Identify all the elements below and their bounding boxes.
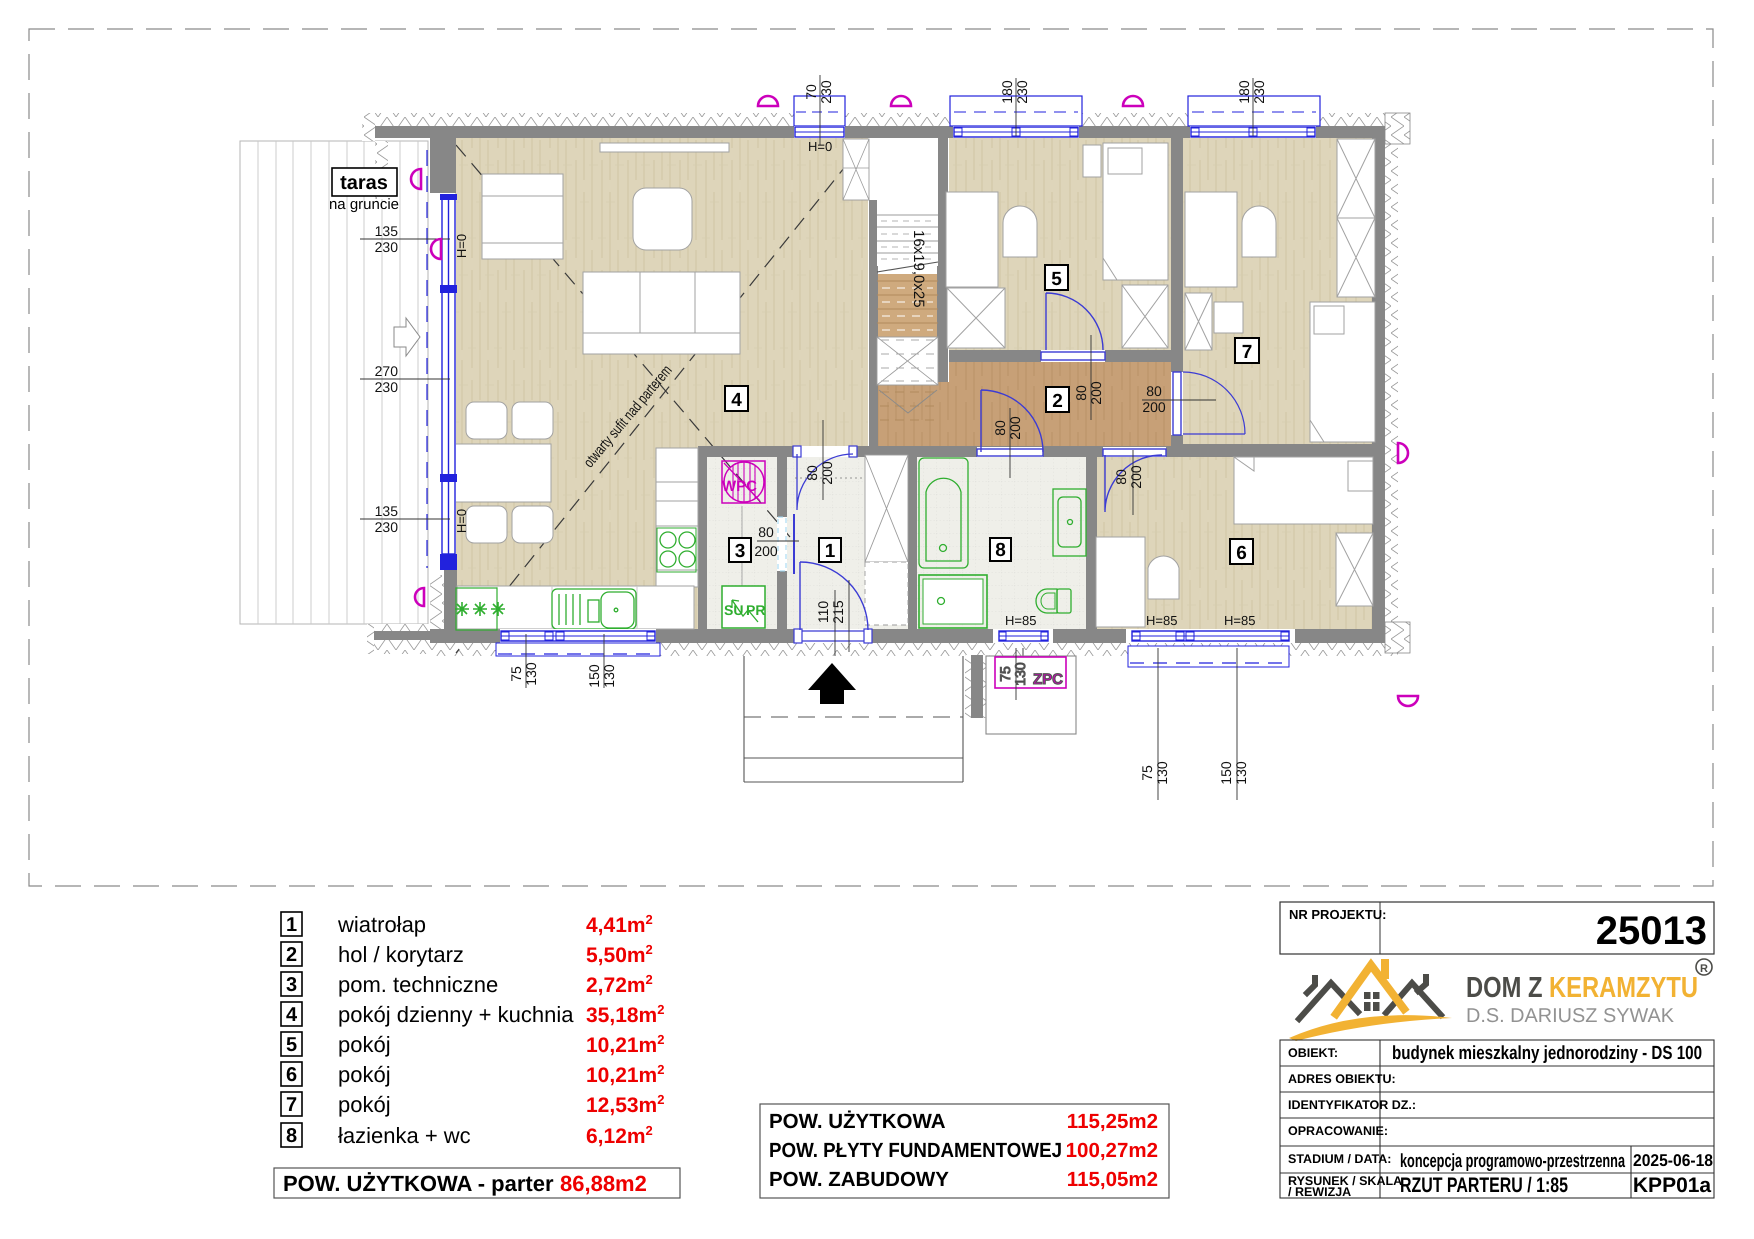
svg-text:2: 2: [286, 944, 297, 966]
svg-text:115,25m2: 115,25m2: [1067, 1110, 1158, 1133]
svg-text:5: 5: [286, 1034, 297, 1056]
svg-text:OPRACOWANIE:: OPRACOWANIE:: [1288, 1124, 1388, 1138]
svg-text:POW. ZABUDOWY: POW. ZABUDOWY: [769, 1168, 949, 1191]
svg-text:IDENTYFIKATOR DZ.:: IDENTYFIKATOR DZ.:: [1288, 1098, 1416, 1112]
svg-text:pokój dzienny + kuchnia: pokój dzienny + kuchnia: [338, 1002, 574, 1027]
svg-text:80: 80: [804, 465, 820, 481]
svg-text:5: 5: [1051, 269, 1062, 290]
svg-text:KPP01a: KPP01a: [1633, 1174, 1712, 1197]
svg-text:wiatrołap: wiatrołap: [337, 912, 426, 937]
svg-text:R: R: [1700, 963, 1708, 975]
svg-text:80: 80: [1113, 469, 1129, 485]
svg-text:4,41m2: 4,41m2: [586, 912, 653, 937]
svg-text:/ REWIZJA: / REWIZJA: [1288, 1185, 1351, 1199]
svg-text:4: 4: [286, 1004, 298, 1026]
svg-text:6: 6: [1236, 543, 1247, 564]
svg-text:230: 230: [375, 239, 399, 255]
svg-text:WPC: WPC: [722, 478, 757, 495]
svg-text:koncepcja programowo-przestrze: koncepcja programowo-przestrzenna: [1400, 1151, 1625, 1172]
svg-text:75: 75: [1139, 765, 1155, 781]
svg-text:130: 130: [1012, 662, 1028, 686]
svg-text:16x19,0x25: 16x19,0x25: [910, 230, 927, 308]
svg-text:ZPC: ZPC: [1033, 671, 1063, 688]
svg-text:75: 75: [997, 666, 1013, 682]
svg-text:5,50m2: 5,50m2: [586, 942, 653, 967]
svg-text:STADIUM / DATA:: STADIUM / DATA:: [1288, 1152, 1391, 1166]
svg-text:POW. PŁYTY FUNDAMENTOWEJ: POW. PŁYTY FUNDAMENTOWEJ: [769, 1139, 1062, 1162]
svg-text:pom. techniczne: pom. techniczne: [338, 972, 498, 997]
svg-text:8: 8: [995, 540, 1006, 561]
svg-text:budynek mieszkalny jednorodzin: budynek mieszkalny jednorodziny - DS 100: [1392, 1043, 1702, 1064]
svg-text:230: 230: [375, 379, 399, 395]
svg-text:SU: SU: [724, 602, 743, 618]
svg-text:1: 1: [825, 541, 836, 562]
svg-text:270: 270: [375, 363, 399, 379]
svg-text:230: 230: [1014, 80, 1030, 104]
svg-text:130: 130: [1154, 761, 1170, 785]
svg-text:pokój: pokój: [338, 1032, 391, 1057]
svg-text:115,05m2: 115,05m2: [1067, 1168, 1158, 1191]
svg-text:H=0: H=0: [454, 509, 469, 533]
svg-text:130: 130: [601, 664, 617, 688]
svg-text:6: 6: [286, 1064, 297, 1086]
svg-text:OBIEKT:: OBIEKT:: [1288, 1046, 1338, 1060]
svg-text:135: 135: [375, 223, 399, 239]
svg-text:180: 180: [1236, 80, 1252, 104]
svg-text:35,18m2: 35,18m2: [586, 1002, 664, 1027]
svg-text:215: 215: [830, 600, 846, 624]
svg-text:110: 110: [815, 601, 831, 624]
svg-text:DOM Z KERAMZYTU: DOM Z KERAMZYTU: [1466, 972, 1698, 1004]
svg-text:130: 130: [1233, 761, 1249, 785]
svg-text:10,21m2: 10,21m2: [586, 1032, 664, 1057]
svg-text:12,53m2: 12,53m2: [586, 1092, 664, 1117]
svg-text:135: 135: [375, 503, 399, 519]
svg-text:2,72m2: 2,72m2: [586, 972, 653, 997]
svg-text:PR: PR: [746, 602, 765, 618]
svg-text:230: 230: [375, 519, 399, 535]
svg-text:200: 200: [1088, 381, 1104, 405]
svg-text:75: 75: [508, 666, 524, 682]
svg-text:25013: 25013: [1596, 909, 1707, 953]
svg-text:2: 2: [1052, 391, 1063, 412]
svg-text:8: 8: [286, 1125, 297, 1147]
svg-text:3: 3: [735, 541, 746, 562]
svg-text:POW. UŻYTKOWA - parter: POW. UŻYTKOWA - parter: [283, 1171, 554, 1196]
svg-text:180: 180: [999, 80, 1015, 104]
svg-text:taras: taras: [340, 172, 388, 194]
svg-text:3: 3: [286, 974, 297, 996]
svg-text:100,27m2: 100,27m2: [1066, 1139, 1158, 1162]
svg-text:7: 7: [1242, 342, 1253, 363]
svg-text:RZUT PARTERU / 1:85: RZUT PARTERU / 1:85: [1400, 1174, 1568, 1197]
svg-text:H=85: H=85: [1146, 613, 1177, 628]
svg-text:1: 1: [286, 914, 297, 936]
svg-text:80: 80: [758, 524, 774, 540]
svg-text:70: 70: [803, 84, 819, 100]
svg-text:NR PROJEKTU:: NR PROJEKTU:: [1289, 907, 1387, 922]
svg-text:150: 150: [586, 664, 602, 688]
svg-text:200: 200: [1142, 399, 1166, 415]
svg-text:4: 4: [731, 390, 742, 411]
svg-text:230: 230: [818, 80, 834, 104]
svg-text:H=85: H=85: [1224, 613, 1255, 628]
svg-text:hol / korytarz: hol / korytarz: [338, 942, 464, 967]
svg-text:ADRES OBIEKTU:: ADRES OBIEKTU:: [1288, 1072, 1396, 1086]
svg-text:86,88m2: 86,88m2: [560, 1171, 647, 1196]
svg-text:D.S. DARIUSZ SYWAK: D.S. DARIUSZ SYWAK: [1466, 1005, 1675, 1027]
svg-text:80: 80: [992, 420, 1008, 436]
svg-text:POW. UŻYTKOWA: POW. UŻYTKOWA: [769, 1110, 946, 1133]
svg-text:2025-06-18: 2025-06-18: [1633, 1151, 1713, 1170]
svg-text:130: 130: [523, 662, 539, 686]
svg-text:10,21m2: 10,21m2: [586, 1062, 664, 1087]
svg-text:pokój: pokój: [338, 1062, 391, 1087]
svg-text:80: 80: [1146, 383, 1162, 399]
svg-text:200: 200: [1007, 416, 1023, 440]
svg-text:H=0: H=0: [808, 139, 832, 154]
svg-text:6,12m2: 6,12m2: [586, 1123, 653, 1148]
svg-text:H=85: H=85: [1005, 613, 1036, 628]
svg-text:200: 200: [819, 461, 835, 485]
svg-text:200: 200: [754, 543, 778, 559]
svg-text:łazienka + wc: łazienka + wc: [338, 1123, 471, 1148]
svg-text:80: 80: [1073, 385, 1089, 401]
svg-text:150: 150: [1218, 761, 1234, 785]
svg-text:na gruncie: na gruncie: [329, 196, 399, 213]
svg-text:7: 7: [286, 1094, 297, 1116]
svg-text:230: 230: [1251, 80, 1267, 104]
svg-text:H=0: H=0: [454, 234, 469, 258]
svg-text:pokój: pokój: [338, 1092, 391, 1117]
svg-text:200: 200: [1128, 465, 1144, 489]
